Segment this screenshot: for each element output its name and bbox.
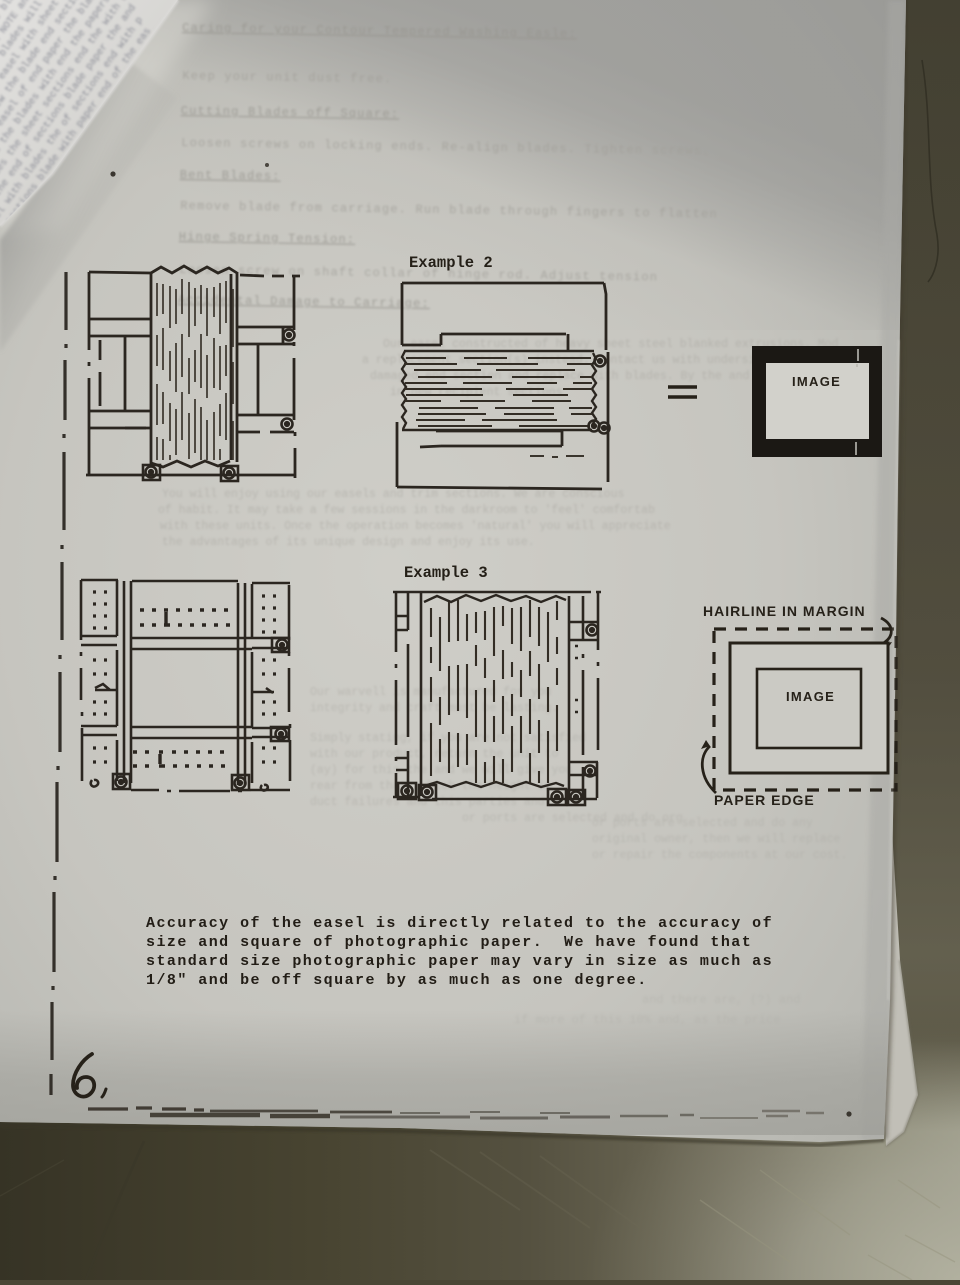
svg-text:integrity and craft must be la: integrity and craft must be lasting. bbox=[310, 702, 558, 715]
svg-text:the advantages of its unique d: the advantages of its unique design and … bbox=[162, 536, 535, 549]
svg-text:of habit. It may take a few se: of habit. It may take a few sessions in … bbox=[158, 504, 655, 517]
svg-text:Accuracy of the easel is direc: Accuracy of the easel is directly relate… bbox=[146, 915, 773, 932]
svg-text:Bent Blades:: Bent Blades: bbox=[180, 168, 281, 184]
svg-text:PAPER EDGE: PAPER EDGE bbox=[714, 792, 815, 808]
svg-text:or repair the components at ou: or repair the components at our cost. bbox=[592, 849, 847, 862]
svg-text:original owner, then we will r: original owner, then we will replace bbox=[592, 833, 841, 846]
svg-text:size and square of photographi: size and square of photographic paper. W… bbox=[146, 934, 752, 951]
svg-text:Example 2: Example 2 bbox=[409, 254, 493, 272]
svg-text:HAIRLINE IN MARGIN: HAIRLINE IN MARGIN bbox=[703, 603, 866, 619]
svg-text:with these units. Once the ope: with these units. Once the operation bec… bbox=[160, 520, 671, 533]
svg-text:(ay) for this the and we will: (ay) for this the and we will give you bbox=[310, 764, 572, 777]
svg-text:1/8" and be off square by as m: 1/8" and be off square by as much as one… bbox=[146, 972, 648, 989]
svg-text:standard size photographic pap: standard size photographic paper may var… bbox=[146, 953, 773, 970]
svg-text:IMAGE: IMAGE bbox=[786, 689, 835, 704]
svg-text:Example 3: Example 3 bbox=[404, 564, 488, 582]
svg-text:and there are, (?) and: and there are, (?) and bbox=[642, 993, 800, 1007]
svg-text:You will enjoy using our easel: You will enjoy using our easels and trim… bbox=[162, 488, 624, 501]
svg-text:Hinge Spring Tension:: Hinge Spring Tension: bbox=[179, 230, 356, 247]
svg-text:if more of this 10% and, as th: if more of this 10% and, as the price bbox=[514, 1013, 780, 1027]
svg-text:or ports are selected and do a: or ports are selected and do any bbox=[592, 817, 813, 830]
svg-text:IMAGE: IMAGE bbox=[792, 374, 841, 389]
